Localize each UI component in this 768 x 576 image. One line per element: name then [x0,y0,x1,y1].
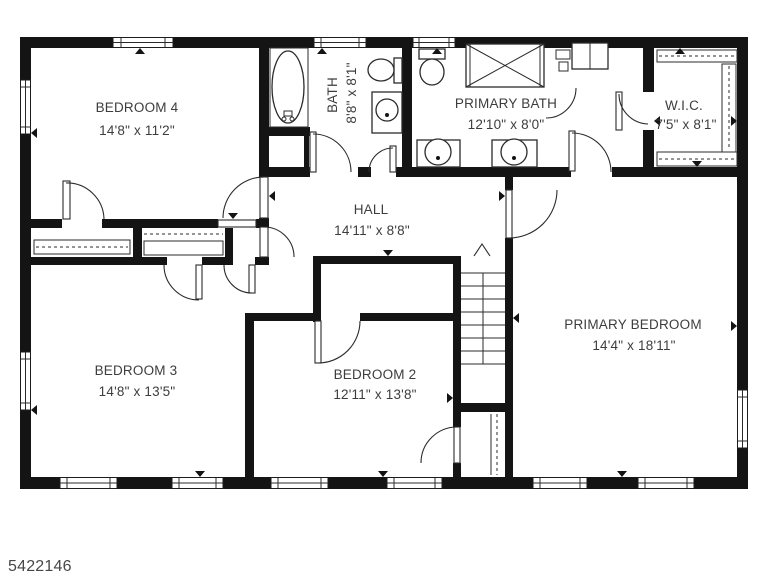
room-dims: 14'4" x 18'11" [592,338,675,353]
room-name: HALL [354,202,389,217]
room-name: BEDROOM 4 [96,100,179,115]
door-hall-vestibule [260,227,294,257]
window [21,352,31,410]
room-name: BEDROOM 3 [95,363,178,378]
room-label-hall: HALL 14'11" x 8'8" [334,202,410,238]
door-closet-bedroom-2 [421,427,460,463]
room-name: PRIMARY BATH [455,96,557,111]
window [738,390,748,448]
vanity-sink-right-icon [492,139,537,167]
stairs-icon [461,244,505,364]
room-label-bedroom-3: BEDROOM 3 14'8" x 13'5" [95,363,178,399]
window [172,478,223,489]
bathtub-icon [270,48,308,127]
room-label-bedroom-4: BEDROOM 4 14'8" x 11'2" [96,100,179,138]
cased-opening [218,220,256,227]
window [113,38,173,48]
watermark: 5422146 [8,558,72,575]
closet-shelf-right [144,234,223,255]
room-name: BATH [325,77,340,113]
door-primary-bedroom [506,190,557,238]
room-label-wic: W.I.C. 7'5" x 8'1" [655,98,716,132]
room-name: W.I.C. [665,98,703,113]
toilet-bath-icon [368,58,402,83]
room-dims: 14'11" x 8'8" [334,223,410,238]
window [314,38,366,48]
door-wic [616,92,648,130]
room-dims: 14'8" x 11'2" [99,123,175,138]
window [60,478,117,489]
fixtures [270,43,608,167]
stairs-up-arrow-icon [474,244,490,256]
toilet-primary-icon [419,49,445,85]
door-bath [310,132,351,172]
room-label-primary-bath: PRIMARY BATH 12'10" x 8'0" [455,96,557,132]
door-bedroom-3 [224,265,255,293]
room-dims: 7'5" x 8'1" [655,117,716,132]
room-dims: 12'10" x 8'0" [468,117,545,132]
room-label-bedroom-2: BEDROOM 2 12'11" x 13'8" [333,367,416,402]
floor-plan: BEDROOM 4 14'8" x 11'2" BATH 8'8" x 8'1"… [0,0,768,576]
door-closet-bedroom-4 [63,181,104,219]
window [533,478,587,489]
window [387,478,442,489]
room-name: PRIMARY BEDROOM [564,317,702,332]
window [271,478,328,489]
window [413,38,455,48]
room-name: BEDROOM 2 [334,367,417,382]
vanity-sink-left-icon [417,139,460,167]
door-primary-bath [569,131,611,172]
closet-shelf-left [34,240,130,254]
window [638,478,694,489]
door-bedroom-2 [315,321,360,363]
sink-vanity-bath-icon [372,92,402,133]
room-dims: 8'8" x 8'1" [344,62,359,123]
door-bath-alcove [369,146,396,172]
doors [63,92,648,463]
bedroom-2-closet [491,414,497,475]
room-label-primary-bedroom: PRIMARY BEDROOM 14'4" x 18'11" [564,317,702,353]
paper-holder-icon [556,50,570,71]
door-bedroom-4 [223,177,268,218]
room-label-bath: BATH 8'8" x 8'1" [325,62,359,123]
room-dims: 12'11" x 13'8" [333,387,416,402]
linen-cabinet-icon [572,43,608,69]
door-closet-bedroom-3 [164,265,202,300]
window [21,80,31,134]
room-dims: 14'8" x 13'5" [99,384,176,399]
